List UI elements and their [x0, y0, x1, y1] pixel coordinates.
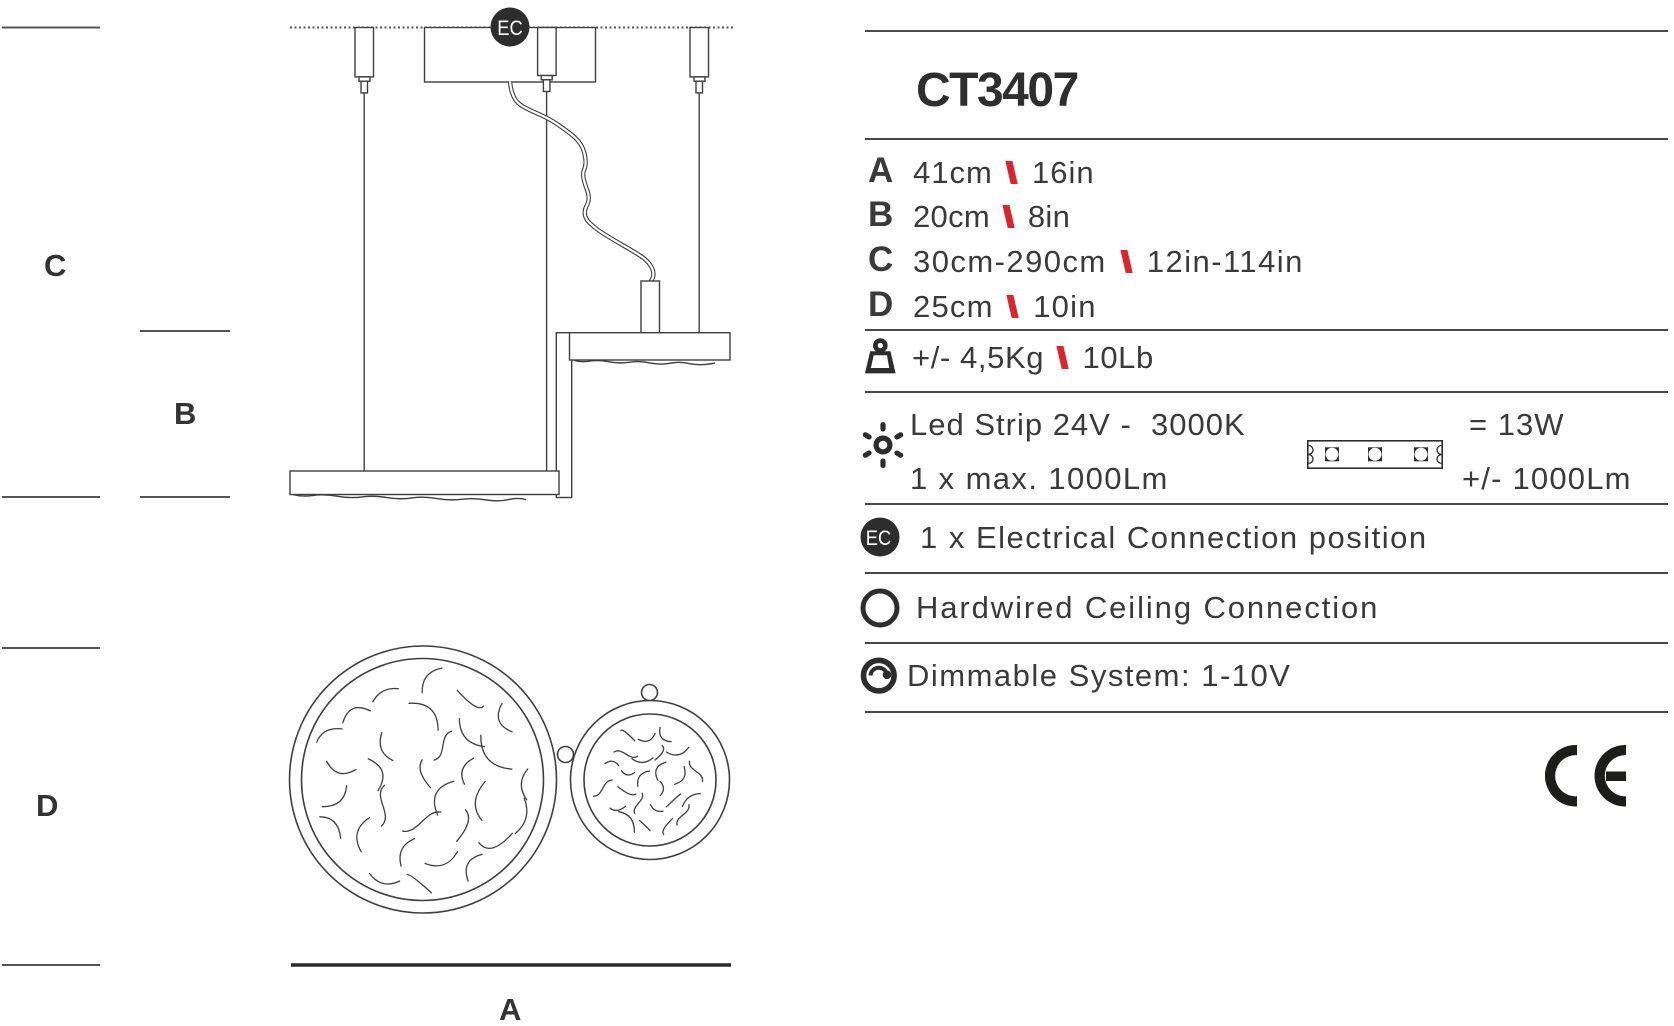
- svg-text:EC: EC: [497, 17, 523, 40]
- svg-text:C: C: [44, 248, 66, 283]
- svg-text:D: D: [36, 788, 58, 823]
- svg-text:A: A: [499, 992, 521, 1026]
- svg-text:B: B: [174, 396, 196, 431]
- svg-text:EC: EC: [866, 527, 892, 550]
